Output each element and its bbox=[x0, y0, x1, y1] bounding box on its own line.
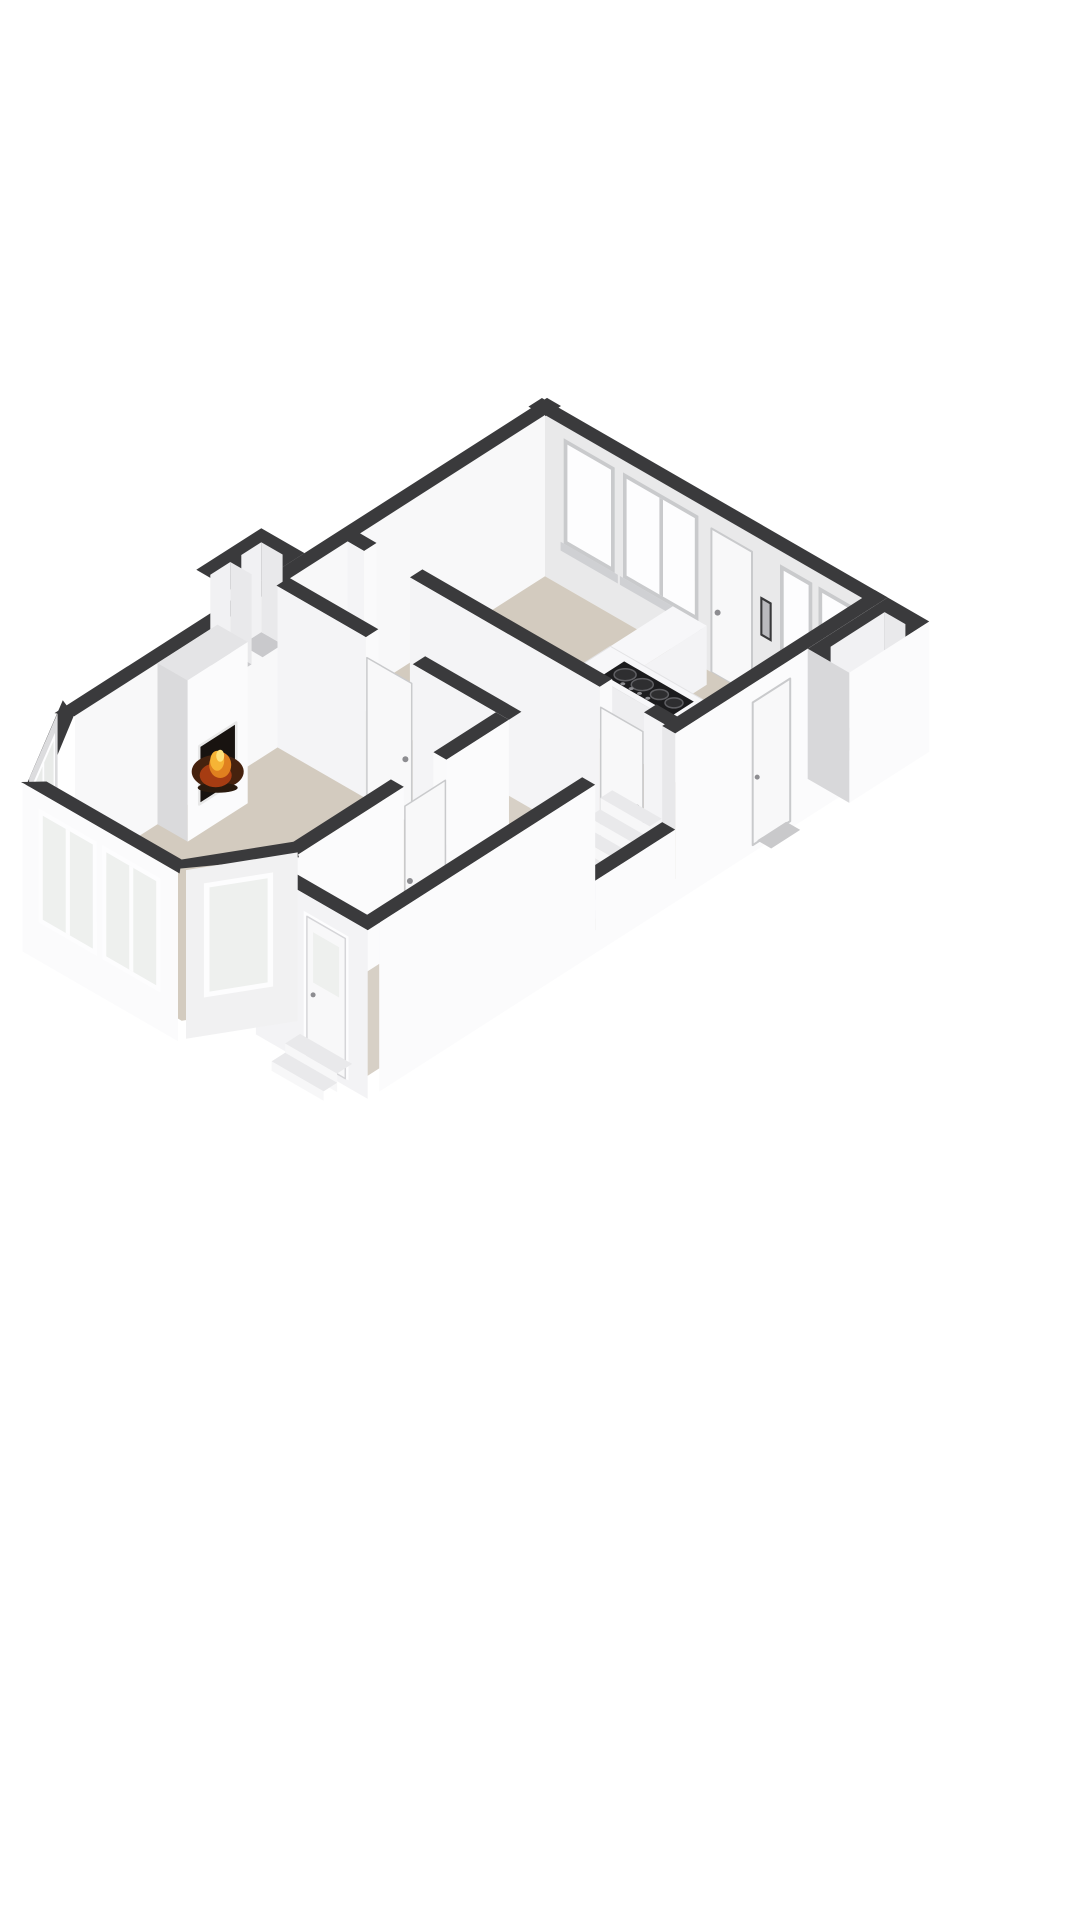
floor-plan-page bbox=[0, 0, 1080, 1920]
cooktop-knob-1 bbox=[620, 682, 625, 685]
cooktop-knob-3 bbox=[637, 692, 642, 695]
corridor-door-handle bbox=[407, 878, 413, 884]
fireplace-side bbox=[158, 663, 188, 842]
bay-window-3-glass bbox=[210, 878, 268, 991]
wall-niche-inner bbox=[762, 600, 769, 638]
burner-4 bbox=[665, 698, 683, 708]
burner-1 bbox=[614, 669, 636, 681]
ne-door-handle bbox=[715, 610, 721, 616]
cooktop-knob-4 bbox=[645, 697, 650, 700]
annex-ext-sw bbox=[808, 649, 850, 803]
back-door bbox=[753, 679, 791, 846]
floor-plan-3d-render bbox=[0, 0, 1080, 1920]
bay-window-1-mullion bbox=[66, 829, 70, 936]
back-door-handle bbox=[755, 775, 760, 780]
burner-3 bbox=[650, 690, 668, 700]
burner-2 bbox=[631, 679, 653, 691]
front-door-handle bbox=[311, 992, 316, 997]
living-door-handle bbox=[402, 756, 408, 762]
se-wall-low-endface bbox=[662, 726, 675, 830]
floor-plan-svg bbox=[0, 0, 1080, 1920]
cooktop-knob-2 bbox=[629, 687, 634, 690]
bay-window-2-mullion bbox=[129, 866, 133, 973]
bedroom-window-2-mullion bbox=[659, 498, 663, 597]
flame-core bbox=[216, 750, 224, 762]
